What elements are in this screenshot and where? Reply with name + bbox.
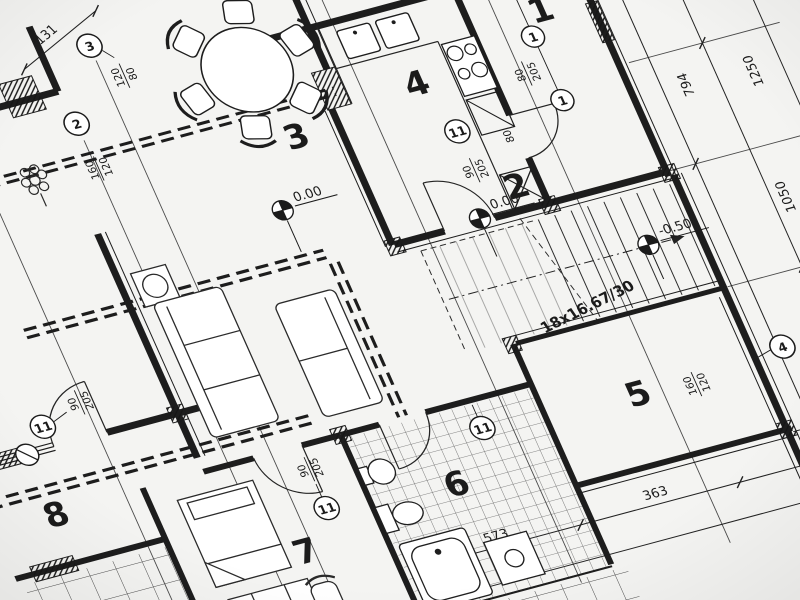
floor-plan-canvas: 794 1250 1050 573 363 131 bbox=[0, 0, 800, 600]
